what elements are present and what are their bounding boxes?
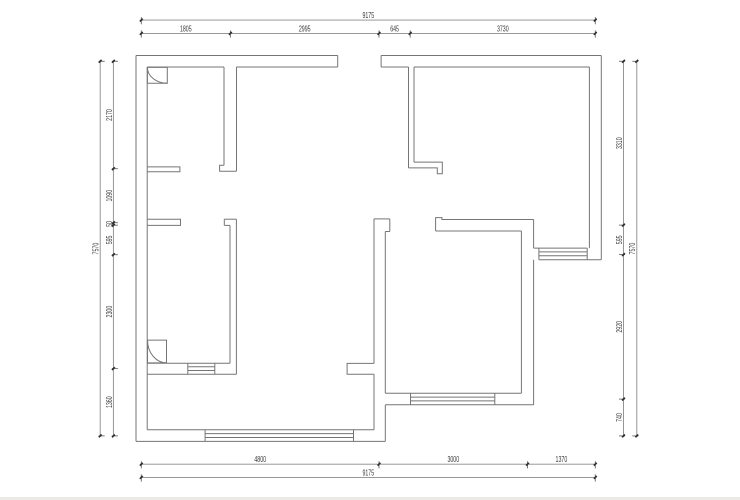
svg-text:1370: 1370 xyxy=(556,455,568,464)
svg-text:9175: 9175 xyxy=(362,11,374,20)
svg-text:645: 645 xyxy=(390,24,399,33)
svg-text:50: 50 xyxy=(105,221,114,227)
svg-text:2300: 2300 xyxy=(105,305,114,317)
svg-text:3730: 3730 xyxy=(497,24,509,33)
svg-text:4800: 4800 xyxy=(254,455,266,464)
svg-text:2920: 2920 xyxy=(615,321,624,333)
svg-text:595: 595 xyxy=(105,235,114,244)
svg-text:1805: 1805 xyxy=(180,24,192,33)
svg-text:2995: 2995 xyxy=(299,24,311,33)
svg-text:7570: 7570 xyxy=(92,242,101,254)
svg-text:7570: 7570 xyxy=(628,242,637,254)
svg-text:1090: 1090 xyxy=(105,189,114,201)
svg-text:3310: 3310 xyxy=(615,137,624,149)
svg-text:2170: 2170 xyxy=(105,109,114,121)
svg-text:740: 740 xyxy=(615,413,624,422)
svg-text:9175: 9175 xyxy=(362,468,374,477)
svg-text:1360: 1360 xyxy=(105,396,114,408)
svg-text:595: 595 xyxy=(615,235,624,244)
svg-text:3000: 3000 xyxy=(447,455,459,464)
